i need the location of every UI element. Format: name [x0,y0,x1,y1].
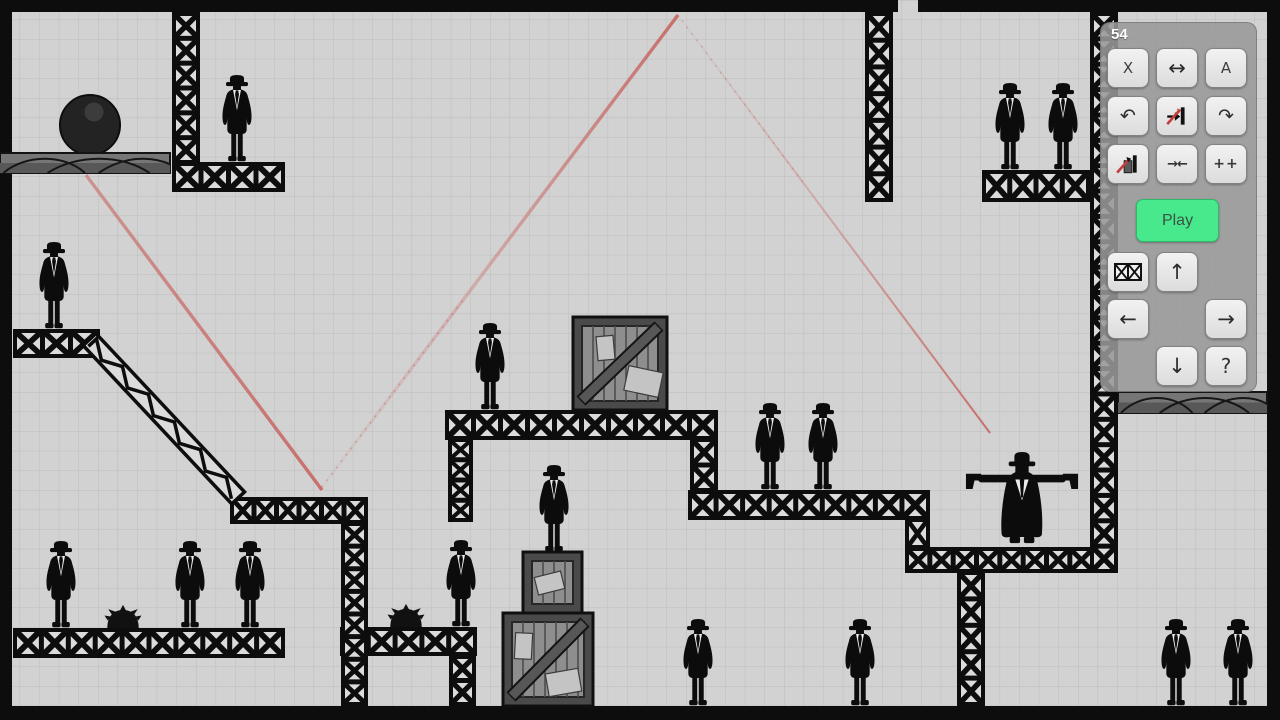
play-button[interactable]: Play [1136,199,1219,242]
truss-girder[interactable] [448,438,473,522]
game-stage: 54 X ↔ A ↶ ↷ →← ++ Play [0,0,1280,720]
truss-girder[interactable] [865,12,893,202]
truss-block-button[interactable] [1107,252,1149,292]
truss-girder[interactable] [13,628,285,658]
truss-girder[interactable] [230,497,368,524]
block-blocked-wall-icon [1115,151,1141,177]
wall [918,0,1280,12]
wall [0,12,12,720]
truss-block-icon [1114,263,1142,281]
truss-girder[interactable] [688,490,930,520]
shots-counter: 54 [1111,26,1128,43]
truss-girder[interactable] [957,571,985,706]
level-canvas[interactable] [0,0,1280,720]
arrow-blocked-wall-icon [1164,103,1190,129]
editor-panel: 54 X ↔ A ↶ ↷ →← ++ Play [1100,22,1257,392]
stone-slab[interactable] [0,153,184,173]
move-up-button[interactable]: ↑ [1156,252,1198,292]
truss-girder[interactable] [172,162,285,192]
truss-girder[interactable] [905,518,930,549]
wall [1267,12,1280,720]
redo-button[interactable]: ↷ [1205,96,1247,136]
wooden-crate[interactable] [523,552,582,613]
collide-arrows-button[interactable]: →← [1156,144,1198,184]
mirror-horizontal-button[interactable]: ↔ [1156,48,1198,88]
truss-girder[interactable] [172,12,200,164]
no-push-block-button[interactable] [1107,144,1149,184]
truss-girder[interactable] [982,170,1090,202]
move-right-button[interactable]: → [1205,299,1247,339]
wall [0,0,898,12]
truss-girder[interactable] [445,410,718,440]
truss-girder[interactable] [690,438,718,492]
truss-girder[interactable] [341,522,368,706]
help-button[interactable]: ? [1205,346,1247,386]
letter-a-button[interactable]: A [1205,48,1247,88]
bomb-ball[interactable] [60,95,120,155]
no-pass-wall-button[interactable] [1156,96,1198,136]
stone-slab[interactable] [1118,392,1279,413]
move-left-button[interactable]: ← [1107,299,1149,339]
wooden-crate[interactable] [503,613,593,706]
plus-plus-button[interactable]: ++ [1205,144,1247,184]
move-down-button[interactable]: ↓ [1156,346,1198,386]
delete-button[interactable]: X [1107,48,1149,88]
undo-button[interactable]: ↶ [1107,96,1149,136]
truss-girder[interactable] [449,655,476,706]
wooden-crate[interactable] [573,317,667,410]
wall [0,706,1280,720]
truss-girder[interactable] [905,547,1118,573]
